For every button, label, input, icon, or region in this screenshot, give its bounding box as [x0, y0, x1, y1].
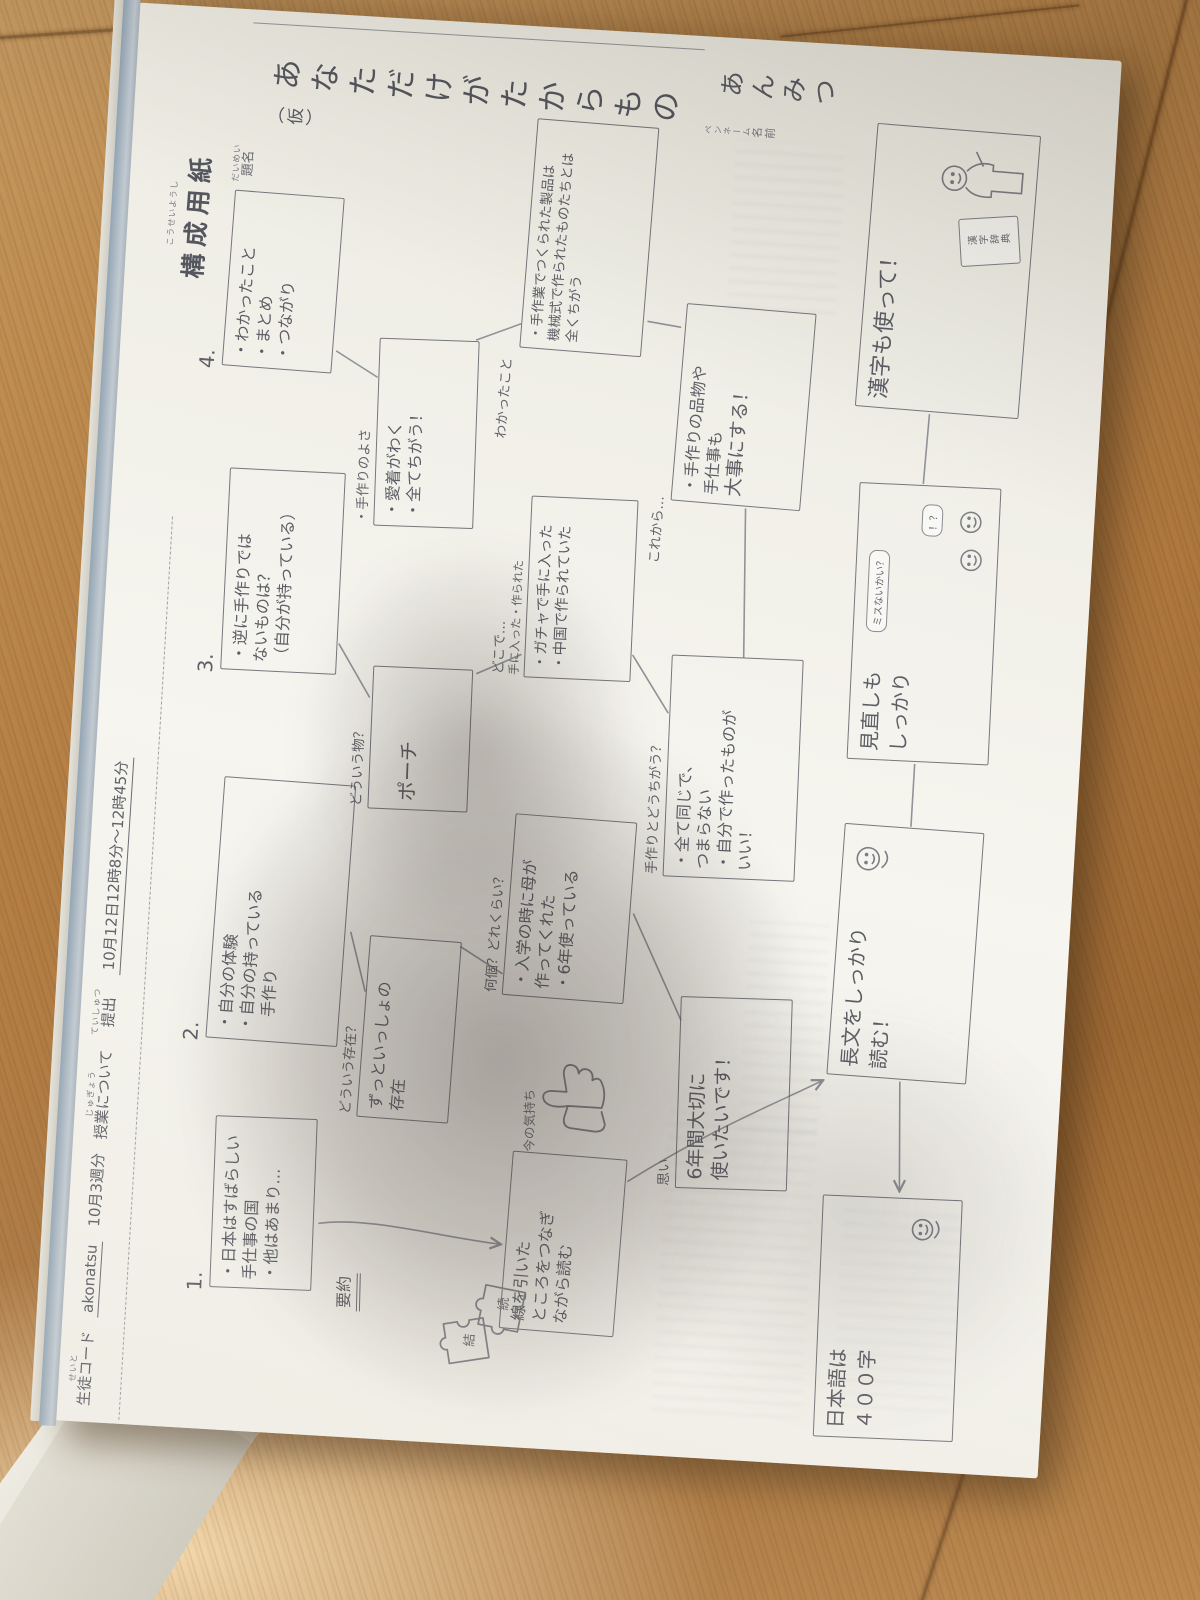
header-rule: [118, 516, 173, 1419]
box-dokode: どこで…手に入った・作られた ・ガチャで手に入った・中国で作られていた: [523, 495, 638, 682]
box-nihongo: 日本語は ４００字: [813, 1194, 963, 1442]
box-1: 1. ・日本はすばらしい手仕事の国・他はあまり…: [209, 1115, 318, 1291]
title-label: だいめい 題名: [232, 143, 256, 182]
thumbs-up-icon: [530, 1052, 623, 1143]
submit-label: ていしゅつ 提出: [91, 987, 119, 1036]
smiley-icon: [852, 837, 903, 882]
subject-text: じゅぎょう 授業について: [85, 1049, 115, 1140]
svg-text:続: 続: [497, 1297, 513, 1311]
puzzle-pieces-icon: 結 続: [430, 1252, 537, 1382]
yoyaku-label: 要約: [330, 1273, 361, 1312]
box-sonzai: どういう存在？ ずっといっしょの存在: [356, 935, 462, 1124]
box-3: 3. ・逆に手作りではないものは？（自分が持っている）: [220, 467, 346, 674]
datetime-text: 10月12日12時8分〜12時45分: [97, 756, 134, 975]
box-chobun: 長文をしっかり 読む！: [826, 823, 984, 1085]
box-2: 2. ・自分の体験・自分の持っている 手作り: [205, 776, 356, 1047]
box-pouch: どういう物？ ポーチ: [367, 666, 473, 813]
box-minaoshi: 見直しも しっかり ミスないかい？ ！？: [847, 482, 1002, 765]
box-nanko: 何個？どれくらい？ ・入学の時に母が作ってくれた・6年使っている: [502, 813, 638, 1004]
box-korekara: これから… ・手作りの品物や手仕事も大事にする！: [670, 303, 816, 511]
smiley-faces-icon: [940, 495, 996, 581]
speech-bubble: ！？: [921, 504, 943, 537]
essay-title: あなただけがたからもの（仮）: [266, 53, 741, 174]
bleed-through: [726, 138, 846, 314]
box-chigau: 手作りとどうちがう？ ・全て同じで、つまらない・自分で作ったものがいい！: [663, 654, 804, 881]
photo-scene: せいと 生徒コード akonatsu 10月3週分 じゅぎょう 授業について て…: [0, 0, 1200, 1600]
student-code-value: akonatsu: [78, 1240, 103, 1318]
box-4: 4. ・わかったこと・まとめ・つながり: [222, 190, 345, 374]
kanji-book-icon: 漢字辞典: [958, 216, 1021, 267]
smiley-icon: [908, 1209, 954, 1251]
week-text: 10月3週分: [83, 1152, 109, 1227]
student-code-label: せいと 生徒コード: [67, 1330, 96, 1406]
form-title: こうせいようし 構成用紙: [161, 148, 219, 279]
svg-text:結: 結: [462, 1333, 478, 1347]
worksheet-paper: せいと 生徒コード akonatsu 10月3週分 じゅぎょう 授業について て…: [54, 3, 1121, 1479]
person-icon: [932, 137, 1033, 214]
box-yosa: ・手作りのよさ ・愛着がわく・全てちがう！: [373, 338, 480, 529]
box-kanji: 漢字も使って！ 漢字辞典: [855, 123, 1041, 419]
box-wakatta: わかったこと ・手作業でつくられた製品は機械式で作られたものたちとは全くちがう: [519, 118, 659, 357]
speech-bubble: ミスないかい？: [866, 550, 891, 633]
box-omoi: 思い 6年間大切に使いたいです！: [675, 996, 793, 1191]
